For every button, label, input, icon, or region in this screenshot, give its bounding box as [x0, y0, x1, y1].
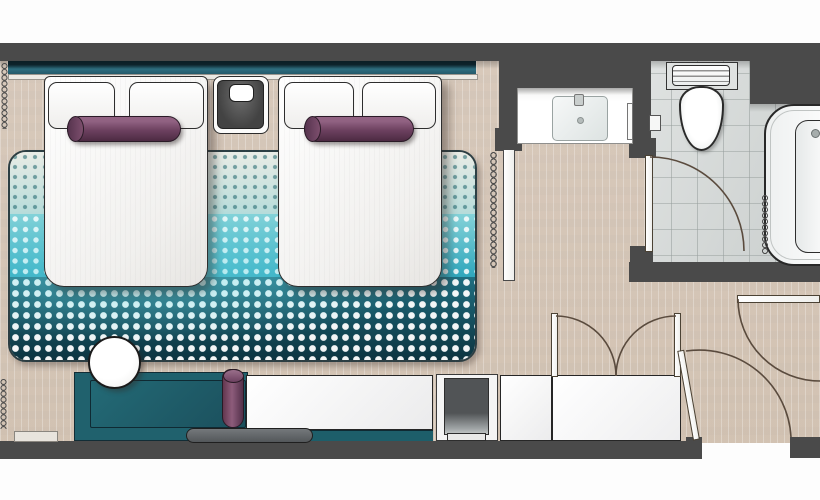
- curtain-coil-window-top: [0, 63, 9, 129]
- entry-door-arc: [686, 350, 791, 437]
- curtain-coil-partition: [488, 152, 499, 268]
- curtain-coil-window-bottom: [0, 379, 7, 429]
- door-swing-arcs: [0, 0, 820, 500]
- wardrobe-right-door-arc: [616, 316, 676, 376]
- floor-plan: [0, 0, 820, 500]
- bathroom-door-arc: [650, 157, 744, 251]
- wardrobe-left-door-arc: [556, 316, 616, 376]
- vestibule-door-arc: [738, 299, 820, 381]
- shower-curtain-coil: [760, 195, 770, 254]
